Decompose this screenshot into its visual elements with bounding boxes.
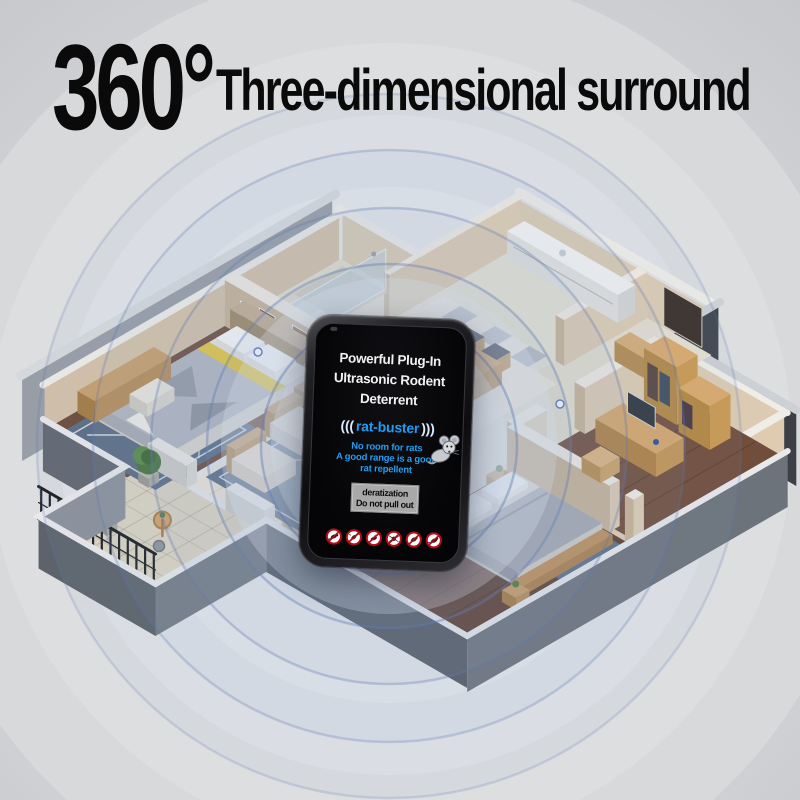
device-front-panel: Powerful Plug-In Ultrasonic Rodent Deter… [307, 322, 468, 564]
headline-degree: 360° [52, 26, 212, 148]
brand-name: rat-buster [354, 418, 422, 437]
no-cockroach-icon [345, 528, 363, 546]
no-rat-icon [325, 528, 343, 546]
warning-label-line: Do not pull out [352, 497, 416, 510]
headline-title: Three-dimensional surround [216, 62, 750, 120]
pest-icon-row [308, 527, 459, 550]
no-fly-icon [365, 529, 383, 547]
cartoon-mouse-icon [422, 427, 462, 468]
product-hero-banner: 360° Three-dimensional surround Powerful… [0, 0, 800, 800]
no-spider-icon [385, 530, 403, 548]
warning-label: deratization Do not pull out [350, 483, 419, 515]
soundwave-left-icon: ((( [340, 417, 354, 434]
no-mouse-icon [424, 532, 442, 550]
no-beetle-icon [404, 531, 422, 549]
indicator-light [330, 327, 337, 331]
ultrasonic-repeller-device: Powerful Plug-In Ultrasonic Rodent Deter… [298, 314, 476, 572]
